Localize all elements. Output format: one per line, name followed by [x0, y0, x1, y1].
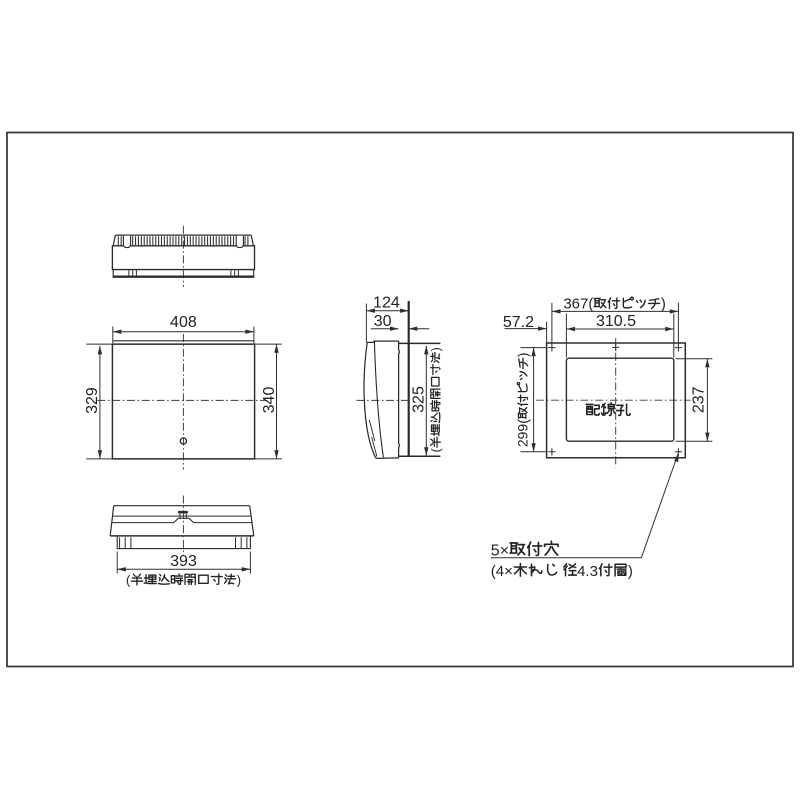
svg-text:): )	[515, 352, 531, 357]
svg-text:5×: 5×	[491, 543, 509, 560]
svg-text:): )	[237, 572, 241, 587]
svg-text:310.5: 310.5	[596, 313, 636, 330]
svg-text:): )	[429, 347, 443, 351]
svg-text:325: 325	[411, 386, 428, 413]
svg-text:(: (	[126, 572, 131, 587]
svg-text:237: 237	[691, 386, 708, 413]
svg-text:340: 340	[261, 387, 278, 414]
svg-text:30: 30	[374, 313, 392, 330]
svg-text:393: 393	[170, 553, 197, 570]
svg-text:329: 329	[84, 387, 101, 414]
svg-text:4.3: 4.3	[577, 563, 598, 580]
svg-text:299(: 299(	[515, 419, 531, 447]
svg-text:(4×: (4×	[491, 563, 513, 580]
svg-text:408: 408	[170, 314, 197, 331]
svg-text:57.2: 57.2	[503, 314, 534, 331]
svg-text:): )	[661, 296, 666, 313]
svg-text:124: 124	[373, 294, 400, 311]
svg-text:367(: 367(	[563, 296, 593, 313]
svg-text:): )	[628, 563, 633, 580]
